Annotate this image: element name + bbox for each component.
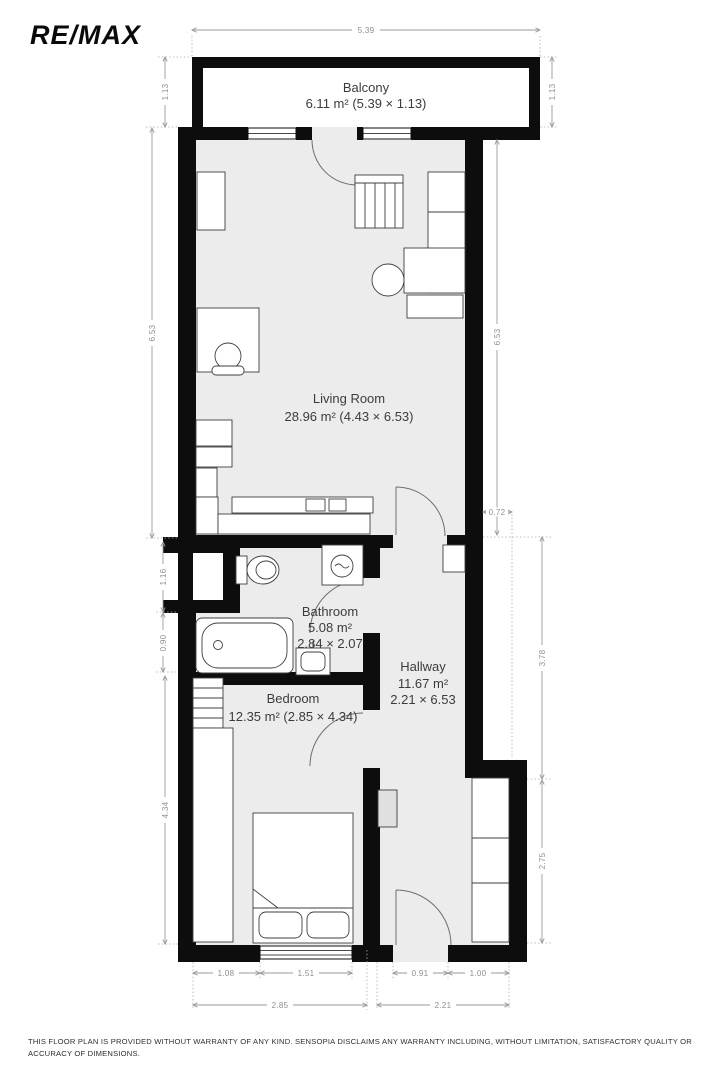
toilet [236,556,279,584]
balcony-window-left [248,128,296,139]
balcony-area: 6.11 m² (5.39 × 1.13) [306,96,427,111]
svg-text:1.51: 1.51 [298,969,315,978]
radiator [378,790,397,827]
bathroom-dims: 2.84 × 2.07 [297,636,362,651]
dim-bottom-seg1: 1.08 [193,969,260,979]
dim-hall-offset: 0.72 [483,508,512,518]
dim-hall-lower-right: 2.75 [538,780,548,943]
floor-plan-drawing: 5.39 1.13 1.13 6.53 [0,0,720,1080]
svg-text:1.08: 1.08 [218,969,235,978]
balcony-window-right [363,128,411,139]
dim-bottom-seg2: 1.51 [260,969,352,979]
svg-text:0.91: 0.91 [412,969,429,978]
cabinet [197,172,225,230]
svg-text:6.53: 6.53 [493,328,502,345]
dim-living-right: 6.53 [493,140,503,535]
svg-text:4.34: 4.34 [161,801,170,818]
bathtub [196,618,293,673]
balcony-west-wall [192,57,203,127]
niche-bottom-wall [163,600,240,613]
dim-bottom-total-left: 2.85 [193,1001,367,1011]
svg-text:2.85: 2.85 [272,1001,289,1010]
svg-text:2.75: 2.75 [538,852,547,869]
bath-west-wall [178,613,196,672]
dim-balcony-right: 1.13 [548,57,558,127]
side-table [372,264,404,296]
washing-machine [322,545,363,585]
bedroom-door-opening [363,710,380,768]
svg-text:1.00: 1.00 [470,969,487,978]
dim-bath-left: 0.90 [159,613,169,672]
balcony-label: Balcony [343,80,390,95]
dim-bottom-total-right: 2.21 [377,1001,509,1011]
bathroom-door-opening [363,578,380,633]
bedroom-label: Bedroom [267,691,320,706]
hallway-dims: 2.21 × 6.53 [390,692,455,707]
hallway-label: Hallway [400,659,446,674]
bathroom-area: 5.08 m² [308,620,353,635]
svg-text:1.13: 1.13 [548,83,557,100]
hall-closet [472,778,509,942]
living-west-wall [178,140,196,540]
living-room-area: 28.96 m² (4.43 × 6.53) [285,409,414,424]
svg-text:5.39: 5.39 [358,26,375,35]
dim-bedroom-left: 4.34 [161,676,171,944]
svg-text:6.53: 6.53 [148,324,157,341]
wardrobe [193,728,233,942]
niche-top-wall [163,537,240,553]
balcony-north-wall [192,57,540,68]
balcony-east-wall [529,57,540,127]
svg-text:0.90: 0.90 [159,634,168,651]
dim-bottom-seg4: 1.00 [448,969,509,979]
bath-hall-wall-b [363,633,380,672]
south-wall-c [448,945,527,962]
entry-door-opening [393,945,448,962]
svg-text:3.78: 3.78 [538,649,547,666]
dim-top-total: 5.39 [192,25,540,35]
pillow-right [307,912,349,938]
dim-living-left: 6.53 [148,128,158,538]
east-wall-lower [509,760,527,962]
disclaimer-text: THIS FLOOR PLAN IS PROVIDED WITHOUT WARR… [28,1036,700,1060]
svg-text:1.13: 1.13 [161,83,170,100]
coffee-table [407,295,463,318]
hall-shelf [443,545,465,572]
living-hall-opening [393,535,447,548]
bedroom-window [260,946,352,959]
svg-text:1.16: 1.16 [159,568,168,585]
east-wall-upper [465,140,483,760]
floor-plan-page: RE/MAX [0,0,720,1080]
south-wall-b [352,945,393,962]
pillow-left [259,912,302,938]
kitchen-counter [218,497,373,534]
bed-hall-wall-a [363,685,380,710]
svg-text:0.72: 0.72 [489,508,506,517]
bedroom-shelves [193,678,223,728]
dim-balcony-left: 1.13 [161,57,171,127]
balcony-door-opening [312,127,357,140]
hallway-area: 11.67 m² [398,676,449,691]
svg-text:2.21: 2.21 [435,1001,452,1010]
south-wall-a [178,945,260,962]
hallway-floor [380,548,465,945]
dim-bottom-seg3: 0.91 [393,969,448,979]
bed-hall-wall-b [363,768,380,945]
living-north-wall-d [411,127,540,140]
living-room-label: Living Room [313,391,385,406]
living-north-wall-a [178,127,248,140]
living-north-wall-c [357,127,363,140]
living-north-wall-b [296,127,312,140]
bath-hall-wall-a [363,548,380,578]
double-bed [253,813,353,943]
shelving-unit [355,175,403,228]
bedroom-area: 12.35 m² (2.85 × 4.34) [229,709,358,724]
bathroom-label: Bathroom [302,604,358,619]
dim-hall-upper-right: 3.78 [538,537,548,779]
